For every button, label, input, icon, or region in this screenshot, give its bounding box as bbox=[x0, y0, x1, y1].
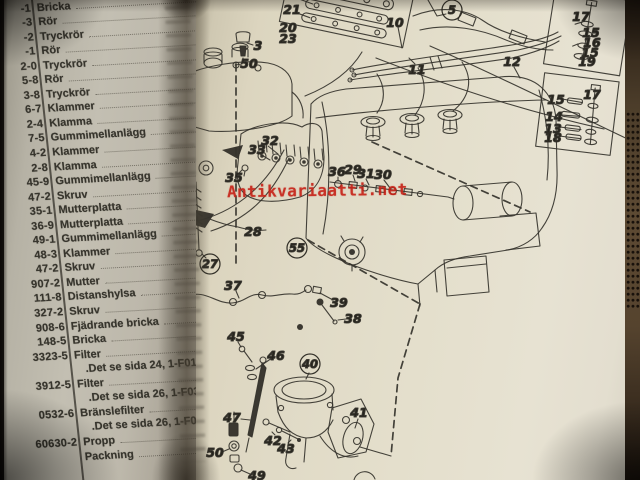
diagram-callout: 49 bbox=[247, 468, 266, 480]
part-number: 2-0 bbox=[10, 60, 37, 73]
diagram-callout: 17 bbox=[572, 9, 590, 24]
injector-pipes bbox=[348, 27, 561, 115]
leader-line bbox=[139, 449, 202, 457]
diagram-callout: 23 bbox=[279, 31, 296, 46]
photo-background-edge bbox=[625, 0, 640, 480]
diagram-callout: 33 bbox=[248, 142, 265, 157]
part-name: Filter bbox=[67, 348, 101, 362]
part-number: 5-8 bbox=[12, 74, 39, 87]
diagram-callout: 50 bbox=[206, 445, 224, 460]
watermark: Antikvariaatti.net bbox=[227, 180, 408, 202]
diagram-callout: 27 bbox=[202, 257, 218, 271]
part-name: Tryckrör bbox=[36, 57, 87, 72]
diagram-callout: 21 bbox=[283, 2, 300, 17]
part-number: -2 bbox=[7, 31, 34, 44]
parts-diagram-art: 2120233505101112171516151917151413183233… bbox=[196, 0, 628, 480]
diagram-callout: 19 bbox=[578, 54, 596, 69]
book-photo: -1Bricka-3Rör-2Tryckrör-1Rör2-0Tryckrör5… bbox=[0, 0, 640, 480]
part-name: Tryckrör bbox=[33, 28, 84, 43]
part-name: Skruv bbox=[50, 188, 88, 202]
part-number: 49-1 bbox=[29, 234, 56, 247]
part-number: 35-1 bbox=[26, 205, 53, 218]
diagram-callout: 12 bbox=[503, 54, 520, 69]
diagram-page: 2120233505101112171516151917151413183233… bbox=[196, 0, 628, 480]
part-number: 2-4 bbox=[17, 118, 44, 131]
ring-tick bbox=[355, 419, 358, 428]
diagram-callout: 55 bbox=[289, 241, 305, 255]
diagram-callout: 38 bbox=[344, 311, 362, 326]
part-number: 48-3 bbox=[31, 248, 58, 261]
leader-line bbox=[151, 131, 202, 136]
part-number: 60630-2 bbox=[51, 437, 78, 450]
parts-list: -1Bricka-3Rör-2Tryckrör-1Rör2-0Tryckrör5… bbox=[4, 0, 202, 464]
part-number: 45-9 bbox=[23, 176, 50, 189]
fuel-line bbox=[196, 286, 346, 331]
diagram-callout: 3 bbox=[254, 38, 263, 53]
part-number: 111-8 bbox=[35, 292, 62, 305]
part-number: -3 bbox=[6, 17, 33, 30]
part-name: Bricka bbox=[66, 333, 107, 347]
part-number: 6-7 bbox=[15, 103, 42, 116]
part-name: Bricka bbox=[30, 0, 71, 14]
part-number: -1 bbox=[4, 2, 31, 15]
part-number: 4-2 bbox=[20, 147, 47, 160]
diagram-callout: 28 bbox=[244, 224, 262, 239]
diagram-callout: 31 bbox=[357, 166, 374, 181]
background-dot-texture bbox=[626, 112, 640, 308]
diagram-callout: 45 bbox=[226, 329, 245, 344]
diagram-callout: 37 bbox=[224, 278, 242, 293]
part-number: 47-2 bbox=[32, 263, 59, 276]
part-number: 47-2 bbox=[24, 190, 51, 203]
part-number: 907-2 bbox=[34, 277, 61, 290]
part-name: Tryckrör bbox=[40, 86, 91, 101]
diagram-callout: 17 bbox=[583, 87, 601, 102]
diagram-callout: 47 bbox=[222, 410, 241, 425]
part-name: Mutter bbox=[60, 275, 101, 289]
diagram-callout: 43 bbox=[276, 441, 294, 456]
gasket-ring bbox=[339, 420, 366, 456]
part-number: 2-8 bbox=[21, 161, 48, 174]
part-number: 3912-5 bbox=[45, 379, 72, 392]
parts-list-page: -1Bricka-3Rör-2Tryckrör-1Rör2-0Tryckrör5… bbox=[4, 0, 202, 480]
gasket-box-leader bbox=[305, 52, 362, 96]
part-number: 7-5 bbox=[18, 132, 45, 145]
part-number: 3-8 bbox=[14, 89, 41, 102]
diagram-callout: 50 bbox=[240, 56, 258, 71]
part-number: -1 bbox=[9, 46, 36, 59]
part-number: 327-2 bbox=[37, 306, 64, 319]
part-name: Skruv bbox=[63, 304, 101, 318]
diagram-callout: 41 bbox=[349, 405, 367, 420]
diagram-callout: 40 bbox=[301, 357, 318, 371]
part-number: 3323-5 bbox=[41, 350, 68, 363]
part-number: 36-9 bbox=[27, 219, 54, 232]
part-number bbox=[54, 463, 80, 464]
diagram-callout: 11 bbox=[408, 62, 425, 77]
diagram-callout: 15 bbox=[547, 92, 565, 107]
part-name: Skruv bbox=[58, 261, 96, 275]
diagram-callout: 46 bbox=[266, 348, 285, 363]
part-number: 148-5 bbox=[40, 335, 67, 348]
part-number: 908-6 bbox=[38, 321, 65, 334]
part-name: Packning bbox=[78, 448, 134, 463]
part-number: 0532-6 bbox=[48, 408, 75, 421]
diagram-callout: 39 bbox=[330, 295, 348, 310]
part-name: Filter bbox=[70, 377, 104, 391]
diagram-callout: 5 bbox=[448, 3, 456, 17]
leader-line bbox=[150, 406, 202, 413]
partial-callout-circle bbox=[354, 472, 375, 480]
diagram-callout: 10 bbox=[386, 15, 404, 30]
priming-rod bbox=[241, 357, 266, 452]
diagram-callout: 18 bbox=[544, 130, 562, 145]
leader-line bbox=[141, 290, 202, 296]
part-name: Propp bbox=[77, 434, 116, 448]
ring-leader bbox=[360, 447, 391, 456]
